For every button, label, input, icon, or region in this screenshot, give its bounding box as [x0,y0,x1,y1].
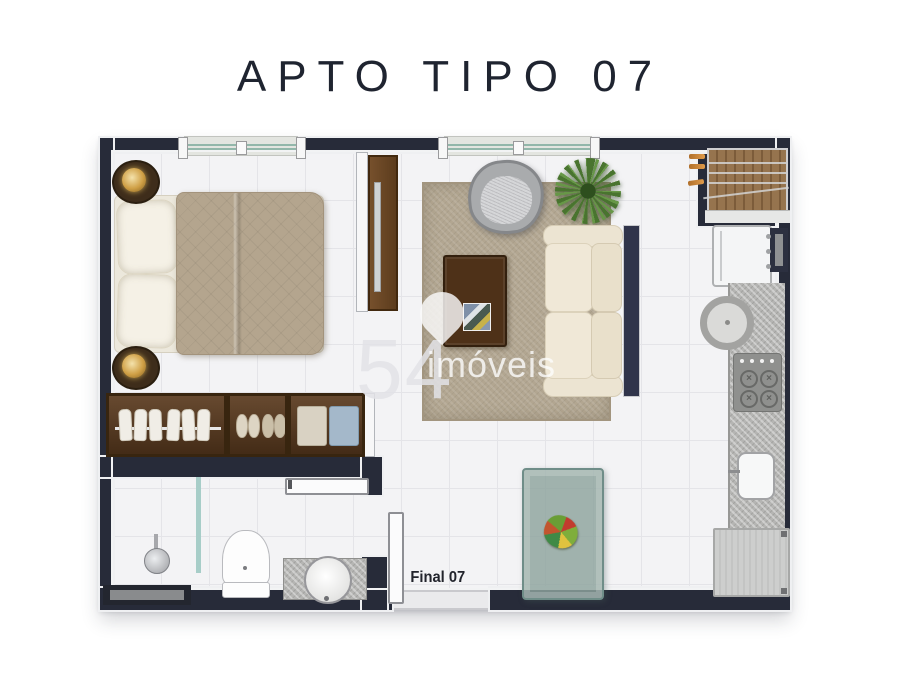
clothesline-wire [709,172,786,174]
shoe [262,414,274,438]
stove-knob [760,359,764,363]
hanging-garment [181,409,196,442]
pillow [116,273,179,349]
shoe [248,414,260,438]
wardrobe-divider [224,396,230,454]
hanging-garment [148,409,162,441]
sofa-seat-cushion [545,312,593,379]
refrigerator [713,528,790,597]
clothesline-wire [703,187,789,199]
coffee-table [443,255,507,347]
tv-screen [374,182,381,292]
armchair-seat [478,173,535,226]
window-jamb [590,137,600,159]
burner-icon: × [760,370,778,388]
shower-glass-partition [196,477,201,573]
kitchen-sink [737,452,775,500]
magazine [463,303,491,331]
burner-icon: × [760,390,778,408]
sofa-seat-cushion [545,243,593,312]
stove-cooktop: × × × × [733,353,782,412]
wall-top-middle [298,138,444,152]
sofa-back-cushion [591,243,622,312]
unit-label: Final 07 [410,569,465,587]
stove-knob [740,359,744,363]
stove-knob [770,359,774,363]
service-sill [705,210,790,223]
bedroom-partition-wall [356,152,368,312]
window-jamb [438,137,448,159]
shower-head [144,548,170,574]
window-jamb [296,137,306,159]
folded-clothes [297,406,327,446]
fridge-hinge [781,531,787,537]
utility-duct-slot [775,234,783,266]
hanging-garment [118,409,133,442]
sofa-back-cushion [591,312,622,379]
potted-plant [555,158,621,224]
wall-left [100,138,113,610]
washing-machine [712,225,772,287]
washer-knob [766,264,771,269]
window-mullion [236,141,247,155]
basin-drain [725,320,730,325]
floor-plan: Final 07 × × × × [100,138,790,610]
sink-faucet [324,596,329,601]
washer-knob [766,234,771,239]
wardrobe-divider [285,396,291,454]
toilet-flush-button [243,566,247,570]
bathroom-door [285,478,369,495]
table-lamp [122,168,146,192]
burner-icon: × [740,390,758,408]
drying-deck [707,148,788,214]
window-mullion [513,141,524,155]
washer-door-line [720,231,722,281]
fridge-hinge [781,588,787,594]
shower-niche-slot [110,590,184,600]
window-jamb [178,137,188,159]
hanging-garment [133,409,147,441]
shoe [236,414,248,438]
burner-icon: × [740,370,758,388]
toilet-tank [222,582,270,598]
kitchen-faucet [728,470,740,473]
page-title: APTO TIPO 07 [0,52,900,102]
wall-closet-bathroom [100,457,382,477]
tv-panel [368,155,398,311]
door-handle [288,480,292,489]
entry-threshold [392,590,490,610]
washer-knob [766,249,771,254]
sofa-console [623,225,640,397]
stove-knob [750,359,754,363]
entry-door [388,512,404,604]
toilet-bowl [222,530,270,586]
clothesline-wire [709,182,786,184]
folded-clothes [329,406,359,446]
clothesline-peg [689,164,705,169]
table-lamp [122,354,146,378]
clothesline-wire [709,162,786,164]
hanging-garment [166,409,181,442]
bed-blanket [176,192,324,355]
hanging-garment [196,409,210,441]
pillow [116,199,179,275]
clothesline-peg [689,154,705,159]
wardrobe [106,393,365,457]
